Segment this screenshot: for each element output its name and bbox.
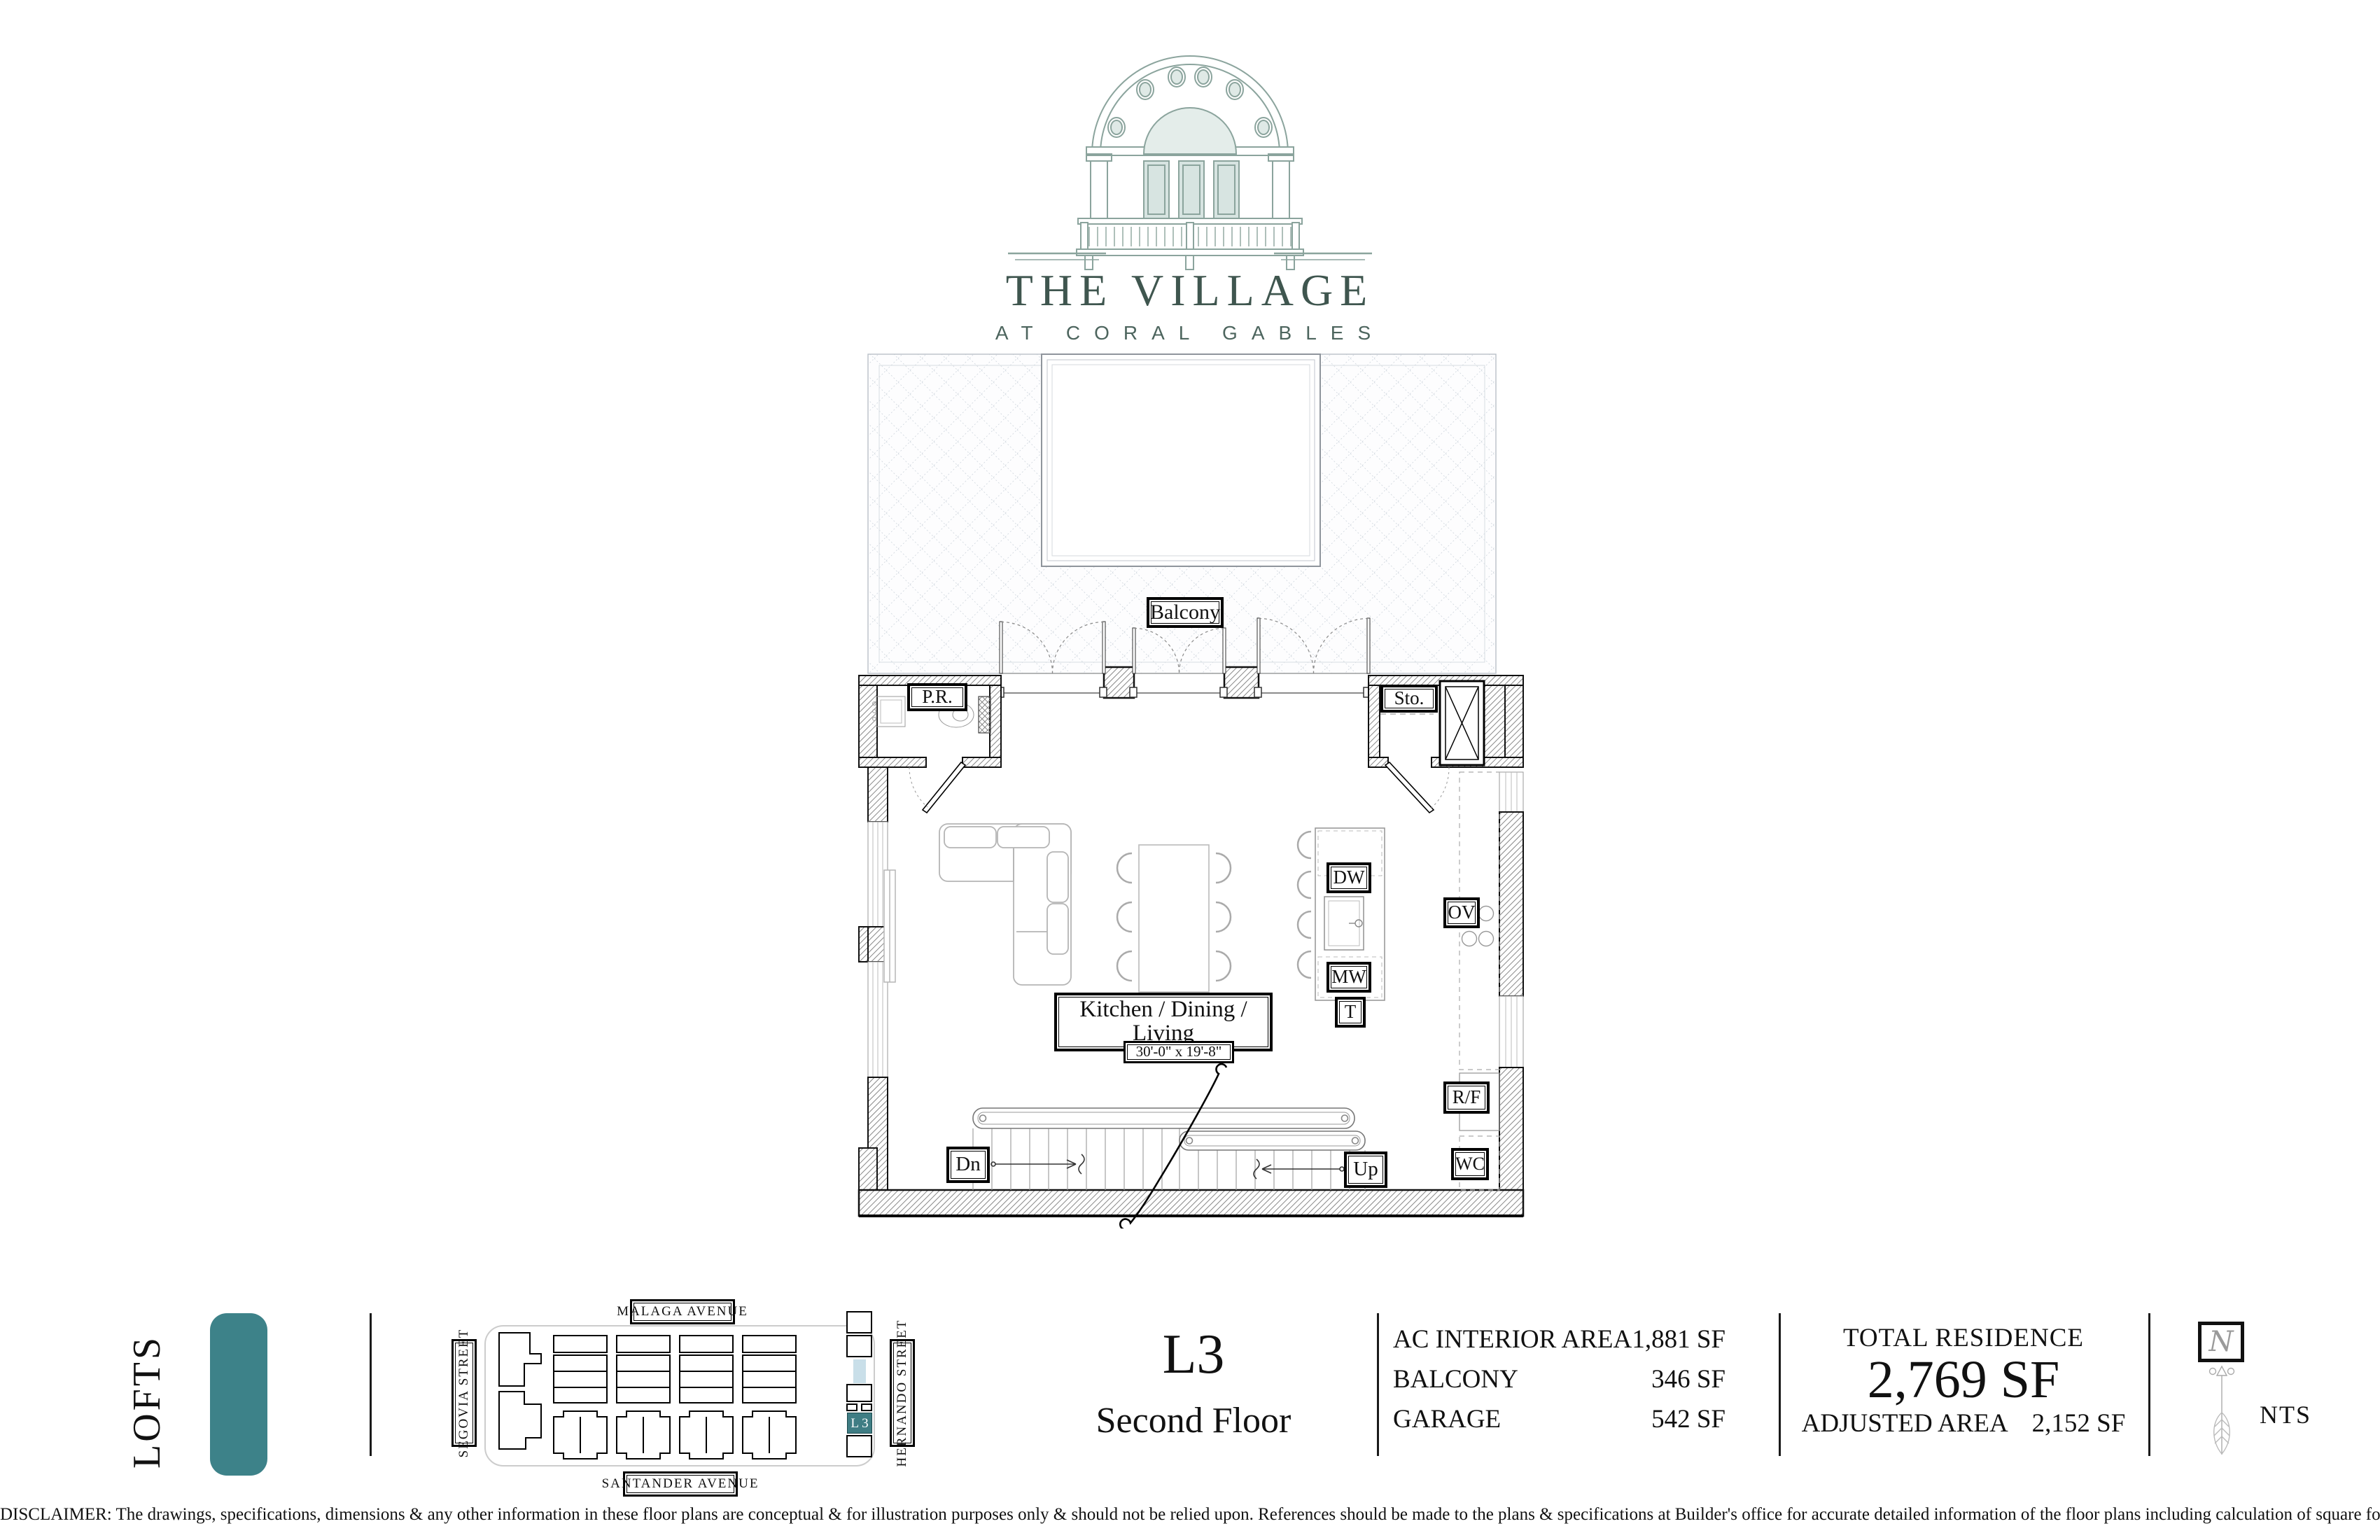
kitchen-counter [1459,772,1499,1190]
area-label: AC INTERIOR AREA [1393,1324,1632,1354]
north-compass-box: N [2198,1322,2244,1362]
powder-room-label: P.R. [907,683,967,711]
adjusted-area-label: ADJUSTED AREA [1802,1408,2008,1438]
trash-label: T [1335,997,1366,1028]
area-value: 1,881 SF [1632,1324,1725,1354]
room-dimensions-label: 30'-0" x 19'-8" [1123,1041,1234,1063]
series-label: LOFTS [125,1317,169,1469]
disclaimer-text: DISCLAIMER: The drawings, specifications… [0,1505,2380,1525]
north-letter: N [2209,1326,2234,1358]
adjusted-area-value: 2,152 SF [2032,1408,2126,1438]
compass-arrow [2202,1365,2241,1457]
area-row-interior: AC INTERIOR AREA 1,881 SF [1393,1324,1725,1354]
east-column [847,1312,871,1457]
fridge-label: R/F [1443,1081,1490,1114]
street-label-hernando: HERNANDO STREET [890,1339,915,1447]
stairs-down-label: Dn [946,1147,990,1183]
footer-divider-1 [370,1313,372,1456]
site-map-unit-highlight: L 3 [847,1413,872,1434]
area-row-garage: GARAGE 542 SF [1393,1404,1725,1434]
footer-divider-4 [2148,1313,2150,1456]
area-label: GARAGE [1393,1404,1501,1434]
microwave-label: MW [1326,962,1371,993]
island-stools [1298,832,1311,978]
sofa [939,824,1071,985]
dining-set [1117,845,1231,992]
total-residence-title: TOTAL RESIDENCE [1799,1323,2128,1353]
area-value: 542 SF [1651,1404,1725,1434]
stairs-up-label: Up [1344,1151,1387,1188]
scale-label: NTS [2260,1400,2311,1429]
brand-tagline: AT CORAL GABLES [840,322,1540,344]
brochure-page: THE VILLAGE AT CORAL GABLES [0,0,2380,1540]
oven-label: OV [1443,897,1480,928]
area-value: 346 SF [1651,1364,1725,1394]
footer-divider-3 [1779,1313,1781,1456]
street-label-segovia: SEGOVIA STREET [451,1339,477,1447]
brand-title: THE VILLAGE [840,265,1540,316]
south-row [554,1411,796,1459]
sto-door-leaf [1385,762,1434,813]
pr-door-leaf [923,762,965,813]
storage-label: Sto. [1380,685,1438,713]
tv-console [884,870,895,982]
stair-railing [973,1108,1365,1150]
street-label-santander: SANTANDER AVENUE [623,1471,738,1497]
unit-floor: Second Floor [1071,1400,1316,1441]
adjusted-area-row: ADJUSTED AREA 2,152 SF [1799,1408,2128,1438]
brand-logo [1008,43,1372,274]
dishwasher-label: DW [1326,862,1371,893]
series-color-swatch [210,1313,267,1476]
unit-model: L3 [1092,1323,1295,1387]
water-closet-label: WC [1451,1148,1489,1180]
street-label-malaga: MALAGA AVENUE [630,1299,735,1324]
balcony-label: Balcony [1147,597,1224,628]
area-label: BALCONY [1393,1364,1518,1394]
site-buildings [499,1312,871,1459]
north-row [554,1336,796,1403]
total-residence-value: 2,769 SF [1799,1350,2128,1410]
elevator [1440,681,1484,765]
floor-plan-svg [850,346,1536,1228]
footer-divider-2 [1377,1313,1379,1456]
area-row-balcony: BALCONY 346 SF [1393,1364,1725,1394]
